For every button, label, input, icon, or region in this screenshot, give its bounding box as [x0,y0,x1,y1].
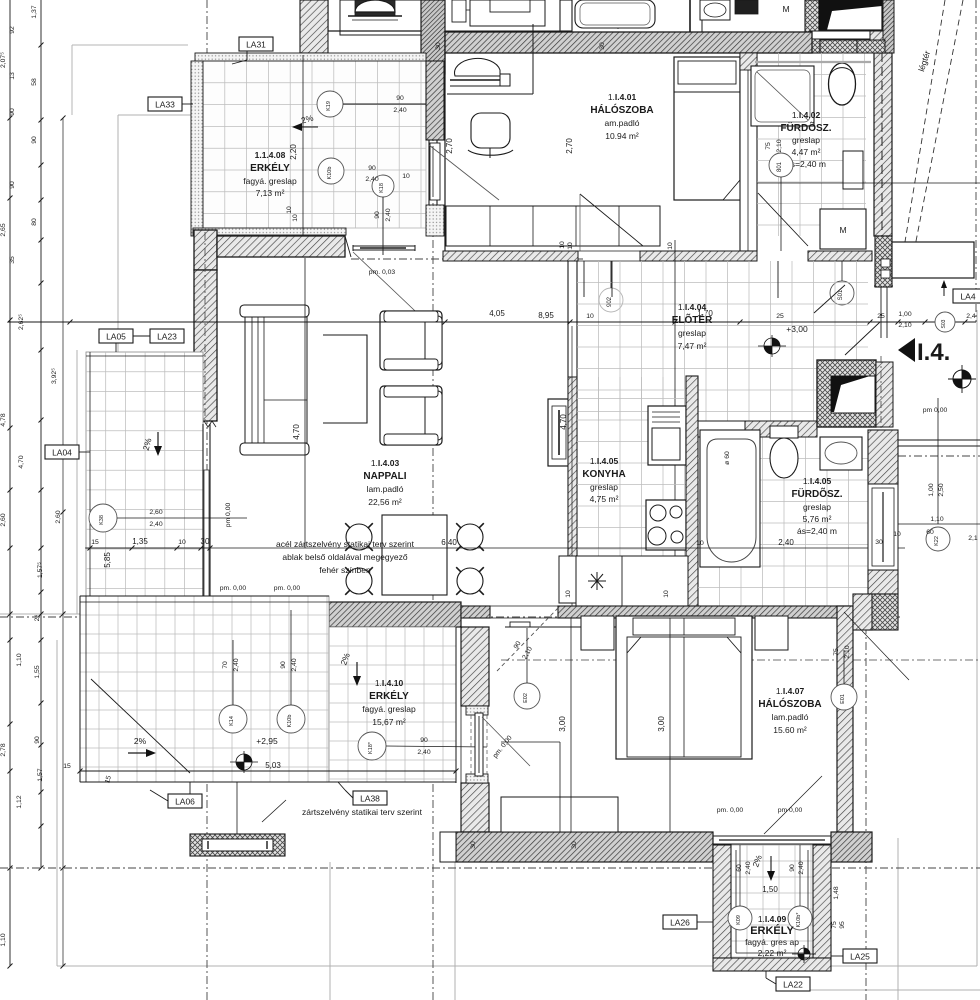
svg-text:90: 90 [9,181,16,189]
svg-text:K10b: K10b [287,715,293,728]
svg-text:K18: K18 [379,183,385,193]
svg-text:ERKÉLY: ERKÉLY [250,161,290,174]
svg-text:LA33: LA33 [155,100,175,110]
svg-text:1.I.4.02: 1.I.4.02 [792,110,821,120]
svg-text:90: 90 [396,95,404,102]
svg-text:LA04: LA04 [52,448,72,458]
svg-text:4,47 m²: 4,47 m² [792,147,821,157]
svg-text:greslap: greslap [803,502,831,512]
svg-text:2,4: 2,4 [966,313,976,320]
svg-text:M: M [782,4,789,14]
svg-text:M: M [839,225,846,235]
svg-text:10: 10 [286,206,293,214]
svg-text:4,05: 4,05 [489,309,505,318]
svg-text:15.60 m²: 15.60 m² [773,725,807,735]
svg-text:fagyá. gres ap: fagyá. gres ap [745,937,799,947]
svg-text:2,07⁵: 2,07⁵ [0,52,7,68]
svg-text:1.I.4.04: 1.I.4.04 [678,302,707,312]
svg-text:4,70: 4,70 [18,455,25,468]
svg-text:2,65: 2,65 [0,223,7,236]
svg-text:80: 80 [31,218,38,226]
svg-text:fagyá. greslap: fagyá. greslap [243,176,297,186]
svg-text:1,10: 1,10 [930,516,943,523]
svg-text:LA26: LA26 [670,918,690,928]
svg-text:75: 75 [831,921,838,929]
svg-text:NAPPALI: NAPPALI [363,471,406,482]
svg-text:2,10: 2,10 [898,322,911,329]
svg-text:pm 0,00: pm 0,00 [778,807,803,814]
svg-text:LA4: LA4 [960,292,975,302]
svg-text:2,40: 2,40 [778,538,794,547]
svg-text:2,70: 2,70 [565,138,574,154]
svg-text:1.I.4.07: 1.I.4.07 [776,686,805,696]
svg-text:2,1: 2,1 [968,535,978,542]
svg-text:1.I.4.09: 1.I.4.09 [758,914,787,924]
svg-text:lam.padló: lam.padló [367,484,404,494]
svg-text:pm. 0,00: pm. 0,00 [717,807,744,814]
svg-text:10: 10 [178,539,186,546]
svg-text:2,10: 2,10 [776,139,783,152]
svg-text:E02: E02 [523,693,529,703]
svg-text:1.I.4.05: 1.I.4.05 [590,456,619,466]
svg-text:90: 90 [34,736,41,744]
svg-text:5,03: 5,03 [265,761,281,770]
svg-text:15: 15 [91,539,99,546]
svg-text:1.1.4.08: 1.1.4.08 [255,150,286,160]
svg-text:90: 90 [374,211,381,219]
svg-text:K38: K38 [99,515,105,525]
svg-text:FÜRDÕSZ.: FÜRDÕSZ. [791,487,842,500]
svg-text:am.padló: am.padló [605,118,640,128]
svg-text:K18*: K18* [368,741,374,754]
svg-text:LA22: LA22 [783,980,803,990]
svg-text:10: 10 [559,241,566,249]
svg-text:801: 801 [777,161,783,172]
svg-text:fehér színben: fehér színben [319,565,371,575]
svg-text:2,40: 2,40 [417,749,430,756]
svg-text:1,10: 1,10 [0,933,7,946]
svg-text:10: 10 [565,590,572,598]
svg-text:95: 95 [839,921,846,929]
svg-text:+3,00: +3,00 [786,324,808,334]
svg-text:2,40: 2,40 [233,658,240,671]
svg-text:2,40: 2,40 [393,107,406,114]
svg-text:1,35: 1,35 [132,537,148,546]
svg-text:90: 90 [31,136,38,144]
svg-text:HÁLÓSZOBA: HÁLÓSZOBA [590,103,653,116]
svg-text:35: 35 [9,256,16,264]
svg-text:1,12: 1,12 [16,795,23,808]
svg-text:2,60: 2,60 [0,513,7,526]
svg-text:zártszelvény statikai terv sze: zártszelvény statikai terv szerint [302,807,423,817]
svg-text:75: 75 [833,648,840,656]
svg-text:1,48: 1,48 [833,886,840,899]
svg-text:ELÕTÉR: ELÕTÉR [672,313,713,326]
svg-text:58: 58 [31,78,38,86]
svg-text:60: 60 [736,864,743,872]
svg-text:70: 70 [222,661,229,669]
svg-text:1.I.4.01: 1.I.4.01 [608,92,637,102]
svg-text:2⁴: 2⁴ [34,615,41,622]
svg-text:3,92⁵: 3,92⁵ [51,368,58,384]
svg-text:2,40: 2,40 [365,176,378,183]
svg-text:pm. 0,00: pm. 0,00 [220,585,247,592]
svg-text:LA25: LA25 [850,952,870,962]
svg-text:30: 30 [435,42,442,50]
svg-text:1,10: 1,10 [16,653,23,666]
svg-text:1.I.4.10: 1.I.4.10 [375,678,404,688]
svg-text:K22: K22 [934,536,940,546]
svg-text:4,70: 4,70 [292,424,301,440]
svg-text:2,70: 2,70 [445,138,454,154]
svg-text:2,20: 2,20 [289,144,298,160]
svg-text:22,56 m²: 22,56 m² [368,497,402,507]
svg-text:5,76 m²: 5,76 m² [803,514,832,524]
svg-text:2,40: 2,40 [385,208,392,221]
svg-text:ablak belső oldalával megegyez: ablak belső oldalával megegyező [282,552,407,562]
svg-text:5,85: 5,85 [103,552,112,568]
svg-text:KONYHA: KONYHA [582,469,625,480]
svg-text:10: 10 [586,313,594,320]
svg-text:2,10: 2,10 [844,645,851,658]
svg-text:I.4.: I.4. [917,339,950,366]
svg-text:90: 90 [789,864,796,872]
svg-text:10: 10 [402,173,410,180]
svg-text:2,40: 2,40 [798,861,805,874]
svg-text:S03: S03 [941,319,947,328]
svg-text:LA31: LA31 [246,40,266,50]
svg-text:4,75 m²: 4,75 m² [590,494,619,504]
svg-text:92: 92 [9,26,16,34]
svg-text:K14: K14 [229,716,235,726]
svg-text:10: 10 [663,590,670,598]
svg-text:K10b*: K10b* [796,912,802,928]
svg-text:pm 0,00: pm 0,00 [225,503,232,528]
svg-text:1,00: 1,00 [898,311,911,318]
svg-text:10.94 m²: 10.94 m² [605,131,639,141]
svg-text:pm. 0,00: pm. 0,00 [274,585,301,592]
svg-text:90: 90 [9,108,16,116]
svg-text:3,00: 3,00 [657,716,666,732]
svg-text:2,40: 2,40 [149,521,162,528]
svg-text:1,57: 1,57 [37,768,44,781]
svg-text:LA05: LA05 [106,332,126,342]
svg-text:902: 902 [607,296,613,307]
svg-text:greslap: greslap [678,328,706,338]
svg-text:acél zártszelvény statikai ter: acél zártszelvény statikai terv szerint [276,539,415,549]
svg-text:ERKÉLY: ERKÉLY [369,689,409,702]
svg-text:60: 60 [926,529,934,536]
svg-text:1,00: 1,00 [928,483,935,496]
svg-text:90: 90 [368,165,376,172]
svg-text:15: 15 [63,763,71,770]
svg-text:2,22 m²: 2,22 m² [758,948,787,958]
svg-text:7,13 m²: 7,13 m² [256,188,285,198]
svg-text:4,70: 4,70 [559,414,568,430]
svg-text:2,40: 2,40 [745,861,752,874]
svg-text:2,40: 2,40 [291,658,298,671]
svg-text:30: 30 [875,539,883,546]
svg-text:6,40: 6,40 [441,538,457,547]
svg-text:10: 10 [667,242,674,250]
svg-text:ás=2,40 m: ás=2,40 m [797,526,837,536]
svg-text:+2,95: +2,95 [256,736,278,746]
svg-text:LA06: LA06 [175,797,195,807]
svg-text:15,67 m²: 15,67 m² [372,717,406,727]
svg-text:LA38: LA38 [360,794,380,804]
svg-text:90: 90 [280,661,287,669]
svg-text:pm 0,00: pm 0,00 [923,407,948,414]
svg-text:7,47 m²: 7,47 m² [678,341,707,351]
svg-text:E01: E01 [840,694,846,704]
svg-text:4,78: 4,78 [0,413,7,426]
svg-text:30: 30 [201,537,210,546]
svg-text:10: 10 [696,540,704,547]
svg-text:pm. 0,03: pm. 0,03 [369,269,396,276]
svg-text:ø 60: ø 60 [724,451,731,465]
svg-text:greslap: greslap [590,482,618,492]
svg-text:2,78: 2,78 [0,743,7,756]
svg-text:greslap: greslap [792,135,820,145]
svg-text:1.I.4.03: 1.I.4.03 [371,458,400,468]
svg-text:30: 30 [599,42,606,50]
svg-text:1,55: 1,55 [34,665,41,678]
svg-text:90: 90 [420,737,428,744]
svg-text:1,50: 1,50 [762,885,778,894]
svg-text:LA23: LA23 [157,332,177,342]
svg-text:FÜRDÕSZ.: FÜRDÕSZ. [780,121,831,134]
svg-text:25: 25 [877,313,885,320]
svg-text:3,00: 3,00 [558,716,567,732]
svg-text:2%: 2% [134,736,147,746]
svg-text:K19: K19 [326,101,332,111]
svg-text:30: 30 [571,841,578,849]
svg-text:lam.padló: lam.padló [772,712,809,722]
svg-text:HÁLÓSZOBA: HÁLÓSZOBA [758,697,821,710]
svg-text:1.I.4.05: 1.I.4.05 [803,476,832,486]
svg-text:8,95: 8,95 [538,311,554,320]
svg-text:13: 13 [9,72,16,80]
svg-text:2,60: 2,60 [55,510,62,523]
svg-text:1,37: 1,37 [31,5,38,18]
svg-text:10: 10 [893,531,901,538]
svg-text:K10b: K10b [327,167,333,180]
svg-text:30: 30 [470,841,477,849]
svg-text:K09: K09 [736,915,742,925]
svg-text:10: 10 [567,242,574,250]
svg-text:2,60: 2,60 [149,509,162,516]
svg-text:fagyá. greslap: fagyá. greslap [362,704,416,714]
svg-text:ERKÉLY: ERKÉLY [750,924,794,937]
svg-text:75: 75 [765,142,772,150]
svg-text:10: 10 [292,214,299,222]
svg-text:1,57⁵: 1,57⁵ [37,562,44,578]
svg-text:2,50: 2,50 [938,483,945,496]
svg-text:25: 25 [776,313,784,320]
